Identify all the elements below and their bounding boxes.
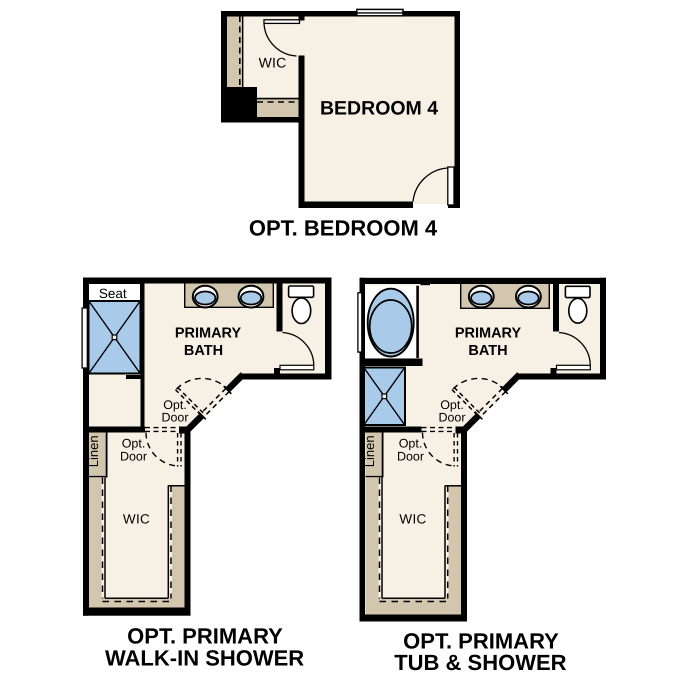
svg-text:WIC: WIC xyxy=(123,512,150,527)
svg-text:WIC: WIC xyxy=(259,55,287,71)
svg-text:TUB & SHOWER: TUB & SHOWER xyxy=(394,650,566,675)
svg-text:Door: Door xyxy=(397,450,424,464)
svg-text:PRIMARY: PRIMARY xyxy=(455,326,522,342)
svg-text:PRIMARY: PRIMARY xyxy=(175,326,242,342)
svg-text:WIC: WIC xyxy=(399,512,426,527)
svg-text:WALK-IN SHOWER: WALK-IN SHOWER xyxy=(105,646,304,671)
svg-text:Door: Door xyxy=(161,411,188,425)
svg-text:Seat: Seat xyxy=(99,286,127,301)
svg-text:BEDROOM 4: BEDROOM 4 xyxy=(320,98,438,120)
svg-text:Linen: Linen xyxy=(86,435,101,467)
svg-text:Door: Door xyxy=(438,411,465,425)
svg-text:BATH: BATH xyxy=(468,343,507,359)
svg-text:BATH: BATH xyxy=(184,343,223,359)
svg-text:Opt.: Opt. xyxy=(399,437,423,451)
svg-text:OPT. BEDROOM 4: OPT. BEDROOM 4 xyxy=(249,216,438,241)
svg-text:Door: Door xyxy=(120,450,147,464)
svg-text:Opt.: Opt. xyxy=(122,437,146,451)
svg-text:Linen: Linen xyxy=(362,435,377,467)
